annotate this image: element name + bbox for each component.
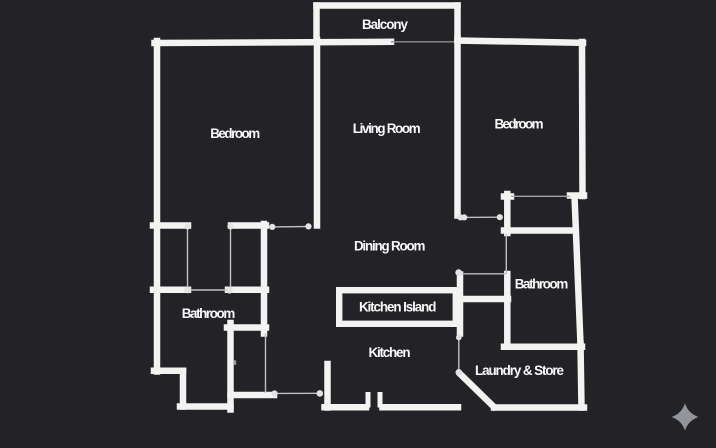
svg-text:Bathroom: Bathroom	[515, 277, 569, 292]
svg-text:Living Room: Living Room	[353, 121, 421, 136]
svg-text:Kitchen: Kitchen	[369, 345, 411, 360]
svg-text:Balcony: Balcony	[362, 17, 409, 32]
svg-text:Bedroom: Bedroom	[210, 126, 260, 141]
svg-text:Bathroom: Bathroom	[182, 306, 236, 321]
svg-text:Dining Room: Dining Room	[354, 239, 426, 254]
svg-text:Kitchen Island: Kitchen Island	[359, 299, 437, 314]
svg-text:Bedroom: Bedroom	[495, 117, 544, 132]
svg-text:Laundry & Store: Laundry & Store	[475, 363, 564, 378]
